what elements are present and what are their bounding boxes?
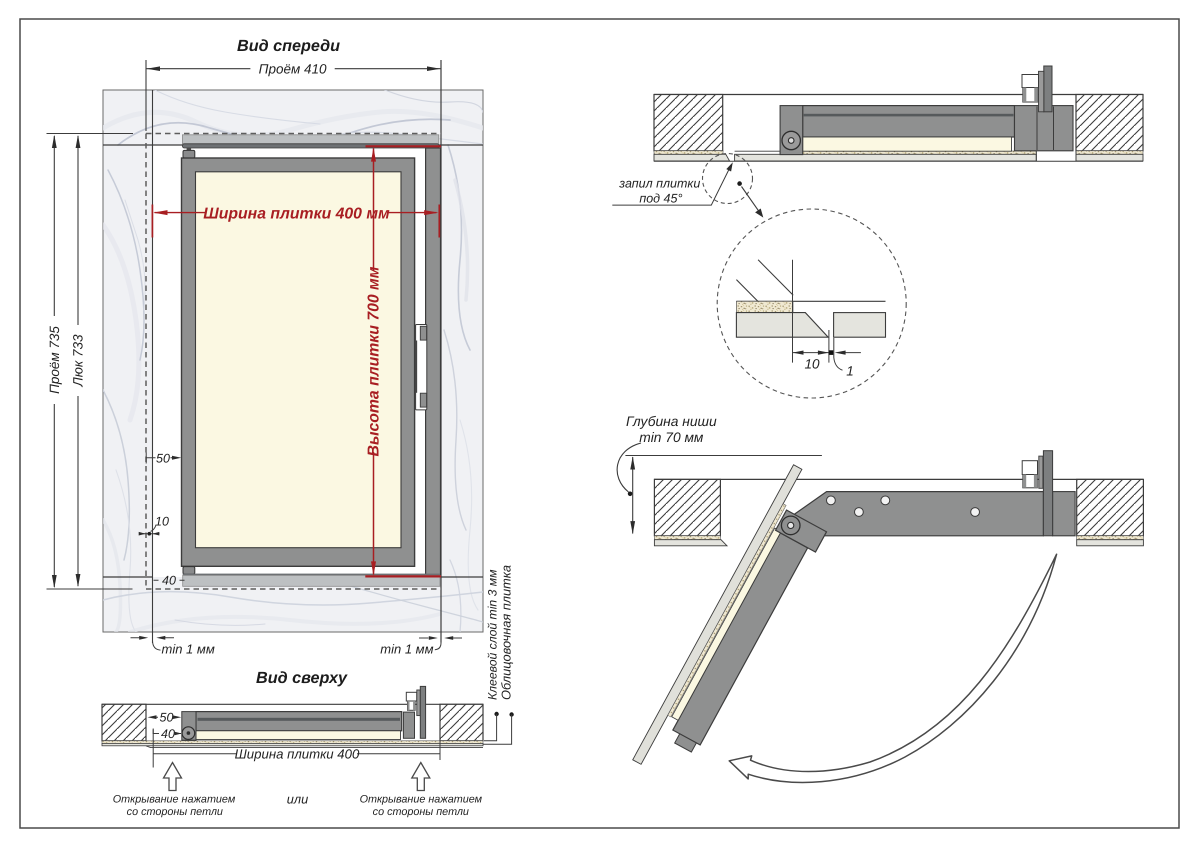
svg-text:Глубина ниши: Глубина ниши [626,414,717,429]
svg-text:50: 50 [160,711,174,725]
svg-text:Ширина плитки 400 мм: Ширина плитки 400 мм [203,206,390,223]
svg-text:10: 10 [804,356,820,371]
svg-text:Ширина плитки 400: Ширина плитки 400 [235,747,360,762]
svg-text:со стороны петли: со стороны петли [127,806,223,818]
svg-text:запил плитки: запил плитки [618,176,700,190]
svg-text:min 70 мм: min 70 мм [639,430,704,445]
svg-text:под 45°: под 45° [639,192,682,206]
svg-text:Люк 733: Люк 733 [71,334,86,388]
svg-text:min 1 мм: min 1 мм [380,642,433,657]
svg-text:40: 40 [161,727,175,741]
svg-text:1: 1 [846,364,854,379]
svg-text:Вид спереди: Вид спереди [237,37,340,55]
svg-text:50: 50 [156,452,170,466]
svg-text:10: 10 [155,515,169,529]
svg-text:Вид сверху: Вид сверху [256,669,348,687]
svg-text:Высота плитки 700 мм: Высота плитки 700 мм [365,266,382,456]
svg-text:Проём 735: Проём 735 [47,326,62,394]
svg-text:со стороны петли: со стороны петли [373,806,469,818]
svg-text:Открывание нажатием: Открывание нажатием [113,794,236,806]
svg-text:Облицовочная плитка: Облицовочная плитка [498,565,513,700]
svg-text:или: или [287,792,308,807]
svg-text:min 1 мм: min 1 мм [162,642,215,657]
svg-text:40: 40 [162,574,176,588]
svg-text:Открывание нажатием: Открывание нажатием [360,794,483,806]
svg-text:Проём 410: Проём 410 [259,62,327,77]
